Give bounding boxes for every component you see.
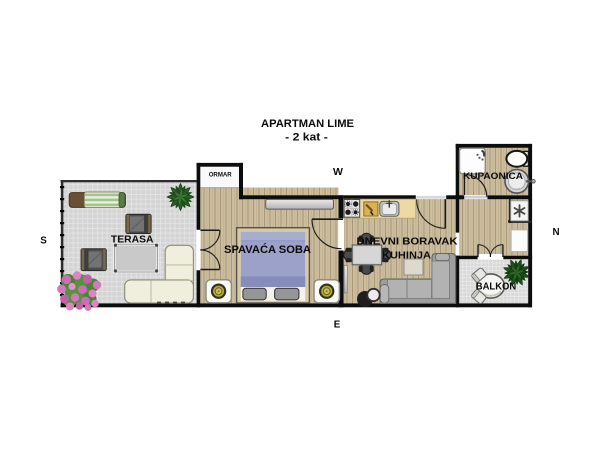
svg-text:S: S: [40, 236, 47, 247]
svg-text:W: W: [333, 166, 343, 178]
svg-text:KUPAONICA: KUPAONICA: [463, 171, 523, 182]
svg-text:APARTMAN LIME: APARTMAN LIME: [261, 118, 354, 130]
svg-text:SPAVAĆA SOBA: SPAVAĆA SOBA: [224, 243, 311, 256]
svg-text:TERASA: TERASA: [111, 234, 154, 245]
svg-text:BALKON: BALKON: [476, 281, 517, 292]
svg-text:DNEVNI BORAVAK: DNEVNI BORAVAK: [357, 236, 459, 247]
svg-text:N: N: [552, 227, 559, 238]
svg-text:ORMAR: ORMAR: [209, 172, 232, 179]
svg-text:E: E: [334, 320, 341, 331]
svg-text:KUHINJA: KUHINJA: [382, 251, 432, 262]
svg-text:- 2 kat -: - 2 kat -: [285, 131, 328, 143]
